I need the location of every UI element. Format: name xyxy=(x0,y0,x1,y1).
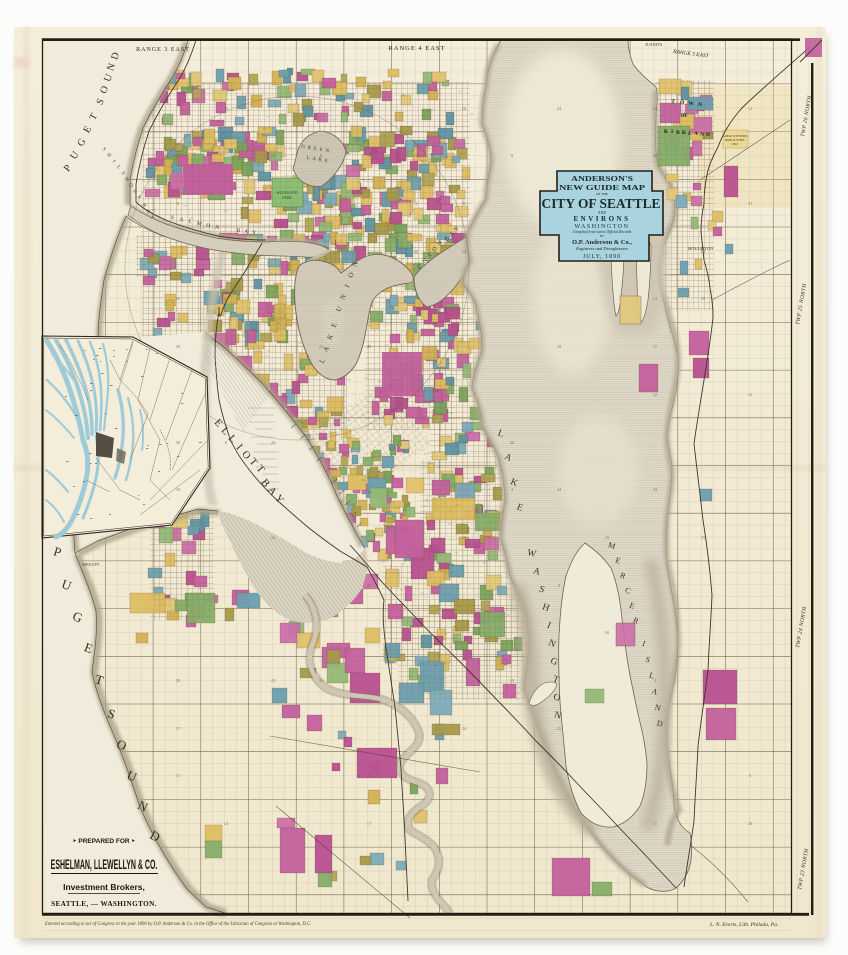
svg-text:15: 15 xyxy=(224,296,229,301)
svg-text:16: 16 xyxy=(176,296,181,301)
svg-text:L. N. Everts, Lith. Philada, P: L. N. Everts, Lith. Philada, Pa. xyxy=(709,922,778,928)
svg-text:29: 29 xyxy=(367,583,372,588)
svg-text:WKS: WKS xyxy=(732,142,739,146)
svg-text:WOODLAND: WOODLAND xyxy=(276,191,298,195)
svg-text:JUANITA: JUANITA xyxy=(645,42,662,47)
svg-text:24: 24 xyxy=(653,106,658,111)
svg-text:CITY OF SEATTLE: CITY OF SEATTLE xyxy=(542,196,661,211)
svg-text:25: 25 xyxy=(605,535,610,540)
svg-text:Investment Brokers,: Investment Brokers, xyxy=(63,882,145,892)
svg-text:25: 25 xyxy=(701,535,706,540)
svg-text:Engineers and Draughtsmen: Engineers and Draughtsmen xyxy=(575,246,628,251)
svg-text:ESHELMAN, LLEWELLYN & CO.: ESHELMAN, LLEWELLYN & CO. xyxy=(51,857,158,872)
svg-text:I: I xyxy=(671,129,673,135)
svg-text:28: 28 xyxy=(367,344,372,349)
svg-text:O.P. Anderson & Co.,: O.P. Anderson & Co., xyxy=(572,239,632,246)
svg-text:24: 24 xyxy=(557,106,562,111)
svg-text:11: 11 xyxy=(653,821,657,826)
svg-text:10: 10 xyxy=(176,487,181,492)
svg-text:34: 34 xyxy=(271,535,276,540)
svg-text:14: 14 xyxy=(224,821,229,826)
svg-text:28: 28 xyxy=(653,153,658,158)
svg-text:29: 29 xyxy=(271,440,276,445)
svg-text:‣ PREPARED FOR ‣: ‣ PREPARED FOR ‣ xyxy=(73,838,136,845)
svg-text:12: 12 xyxy=(748,392,753,397)
svg-text:25: 25 xyxy=(557,726,562,731)
svg-text:OF: OF xyxy=(681,114,688,119)
svg-text:20: 20 xyxy=(748,821,753,826)
svg-text:22: 22 xyxy=(271,153,276,158)
svg-text:18: 18 xyxy=(367,153,372,158)
svg-text:22: 22 xyxy=(319,344,324,349)
svg-text:12: 12 xyxy=(748,106,753,111)
svg-text:17: 17 xyxy=(367,821,372,826)
svg-text:16: 16 xyxy=(462,106,467,111)
svg-text:N: N xyxy=(698,102,702,108)
svg-text:28: 28 xyxy=(176,678,181,683)
svg-text:32: 32 xyxy=(319,678,324,683)
svg-text:Y: Y xyxy=(252,230,257,236)
svg-text:16: 16 xyxy=(462,440,467,445)
svg-text:21: 21 xyxy=(367,106,372,111)
svg-text:WEST PT.: WEST PT. xyxy=(82,562,100,567)
svg-text:30: 30 xyxy=(176,440,181,445)
svg-text:26: 26 xyxy=(510,440,515,445)
svg-text:W: W xyxy=(688,101,694,107)
svg-text:RANGE 4 EAST: RANGE 4 EAST xyxy=(388,45,445,52)
svg-text:ENVIRONS: ENVIRONS xyxy=(574,215,631,223)
svg-text:18: 18 xyxy=(557,344,562,349)
svg-text:19: 19 xyxy=(510,678,515,683)
svg-text:19: 19 xyxy=(701,249,706,254)
svg-text:13: 13 xyxy=(653,296,658,301)
svg-text:19: 19 xyxy=(462,535,467,540)
svg-text:A: A xyxy=(694,131,698,137)
svg-text:RANGE 3 EAST: RANGE 3 EAST xyxy=(136,47,190,53)
svg-text:N: N xyxy=(700,132,704,138)
svg-text:34: 34 xyxy=(462,726,467,731)
svg-text:26: 26 xyxy=(414,249,419,254)
svg-text:NEW GUIDE MAP: NEW GUIDE MAP xyxy=(559,183,646,192)
svg-text:SEATTLE, — WASHINGTON.: SEATTLE, — WASHINGTON. xyxy=(51,900,157,908)
svg-text:Entered according to act of Co: Entered according to act of Congress in … xyxy=(44,922,311,927)
svg-text:10: 10 xyxy=(605,630,610,635)
svg-text:12: 12 xyxy=(462,249,467,254)
svg-text:A: A xyxy=(244,229,249,235)
svg-text:11: 11 xyxy=(653,344,657,349)
svg-text:11: 11 xyxy=(176,773,180,778)
svg-text:23: 23 xyxy=(271,678,276,683)
svg-text:24: 24 xyxy=(271,487,276,492)
svg-text:D: D xyxy=(706,132,710,138)
svg-text:34: 34 xyxy=(557,487,562,492)
svg-text:32: 32 xyxy=(653,392,658,397)
svg-text:33: 33 xyxy=(653,487,658,492)
svg-text:ANDERSON'S: ANDERSON'S xyxy=(571,175,633,183)
svg-text:10: 10 xyxy=(224,106,229,111)
svg-text:31: 31 xyxy=(748,201,753,206)
svg-text:14: 14 xyxy=(414,153,419,158)
svg-text:L: L xyxy=(688,131,692,137)
svg-text:PARK: PARK xyxy=(282,196,292,200)
svg-text:30: 30 xyxy=(176,344,181,349)
svg-text:17: 17 xyxy=(176,726,181,731)
svg-text:JULY, 1890: JULY, 1890 xyxy=(583,254,621,260)
svg-text:18: 18 xyxy=(701,296,706,301)
